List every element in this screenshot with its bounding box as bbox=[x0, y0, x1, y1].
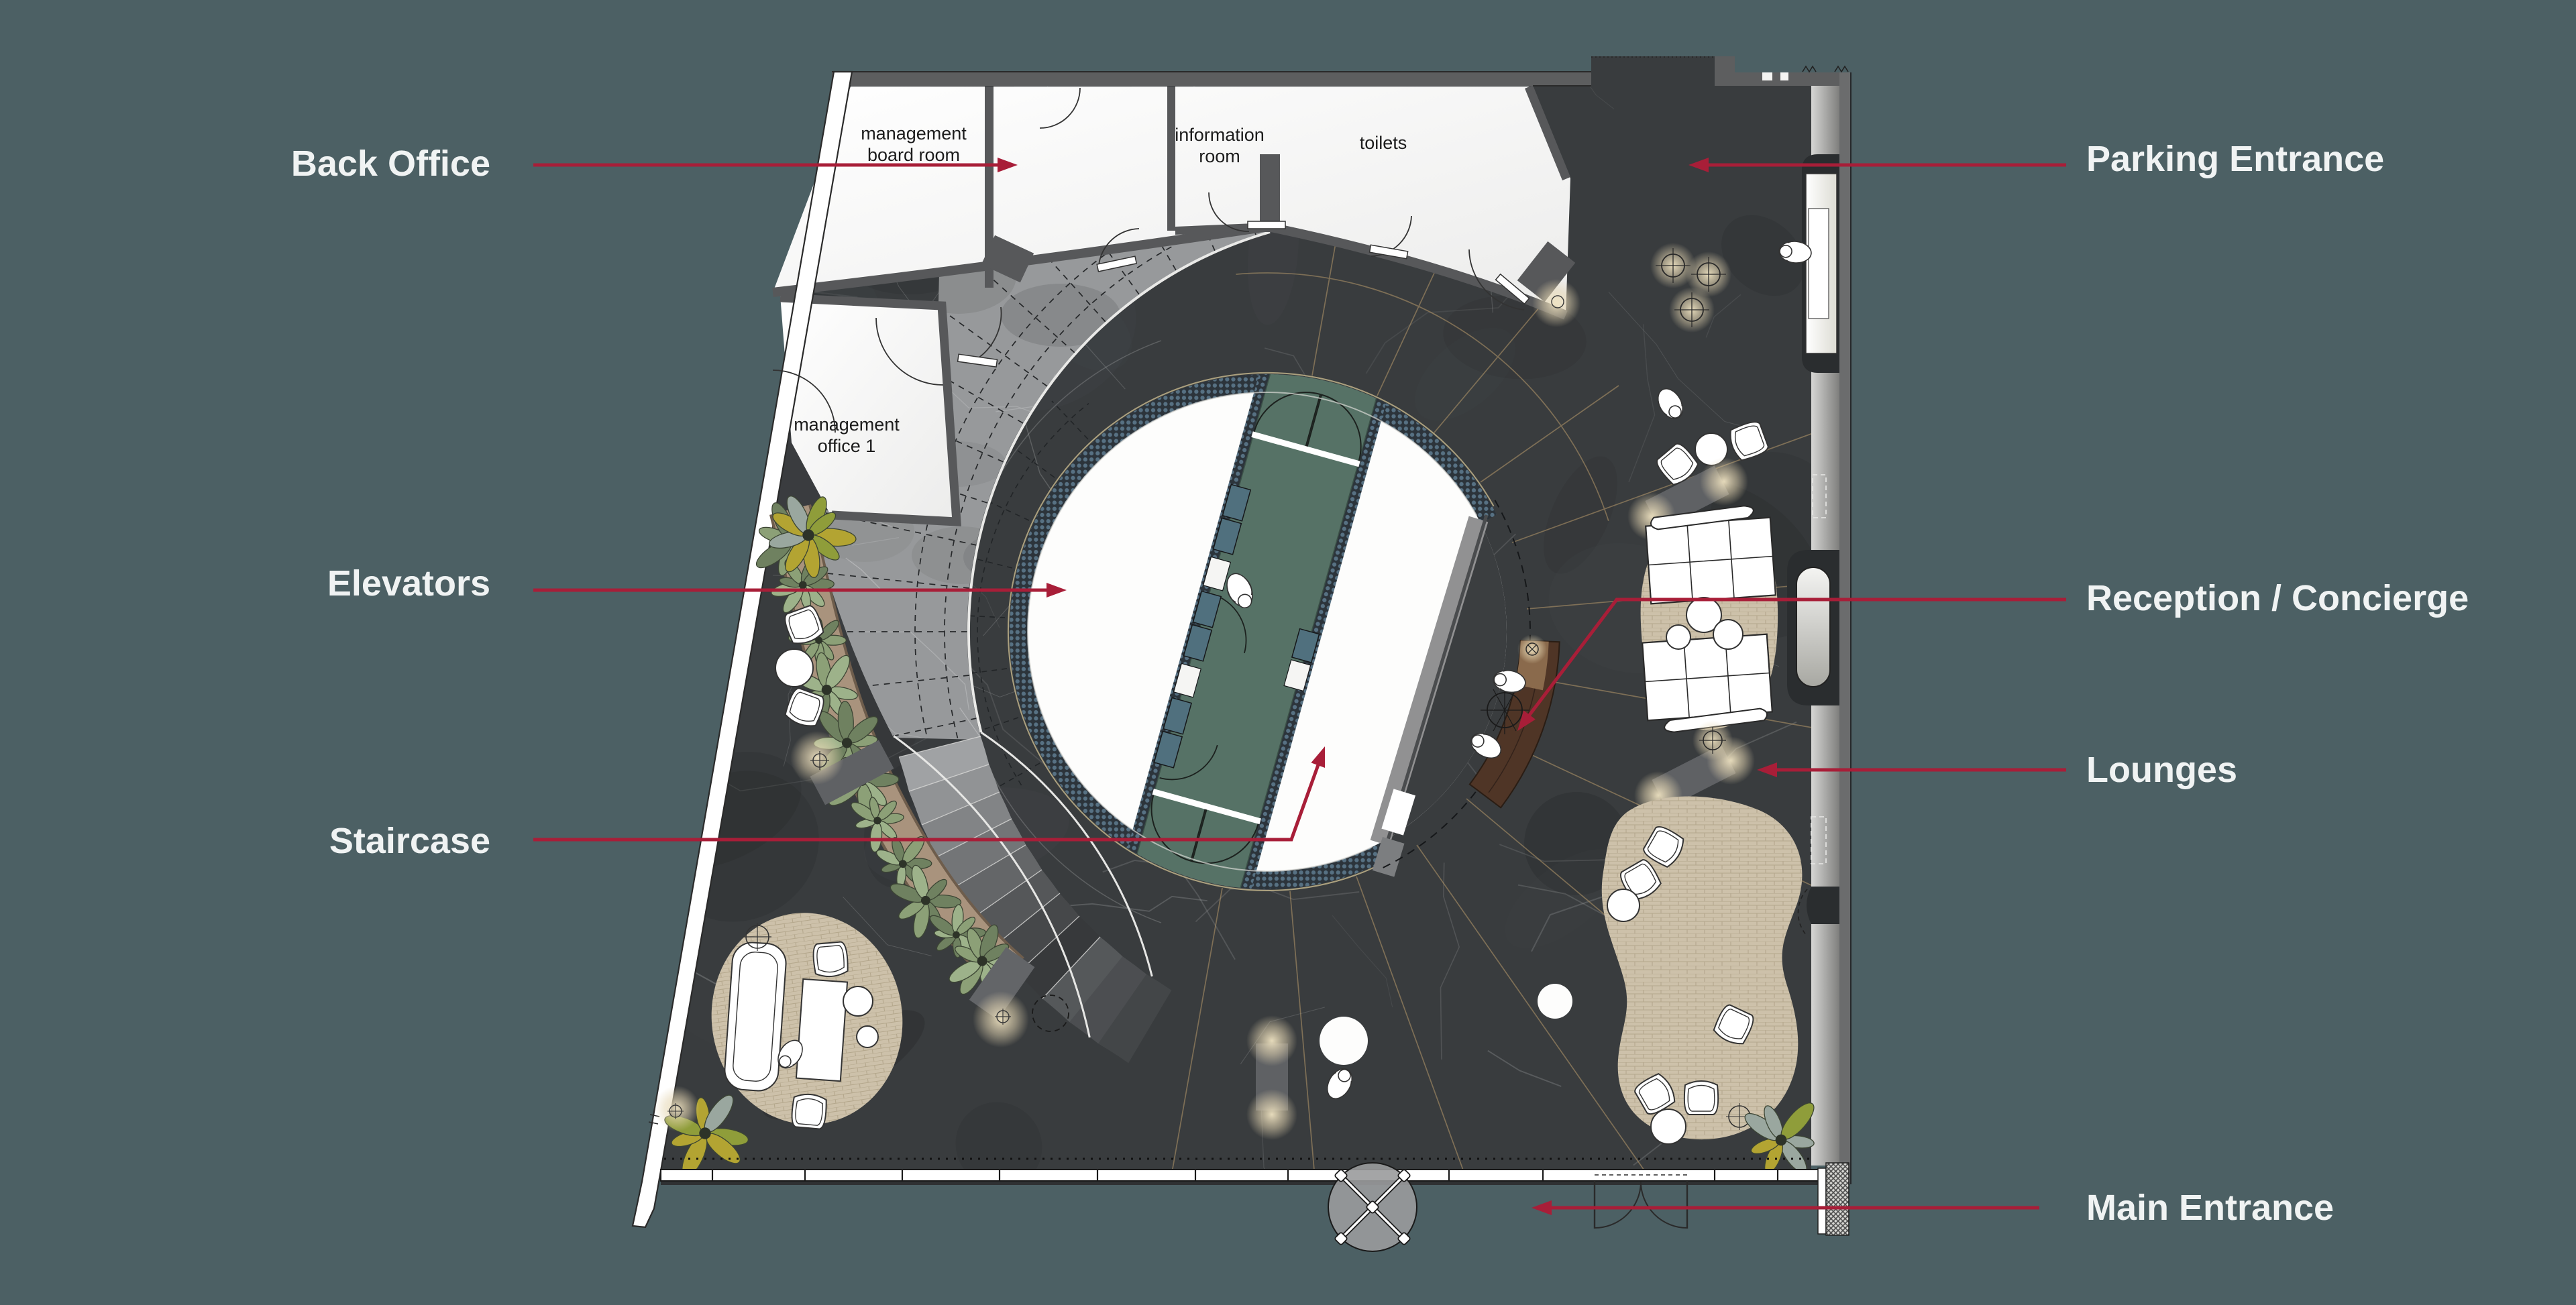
svg-text:Back Office: Back Office bbox=[291, 144, 490, 184]
svg-text:room: room bbox=[1199, 146, 1240, 166]
svg-text:information: information bbox=[1175, 125, 1265, 145]
svg-text:office 1: office 1 bbox=[818, 436, 876, 456]
svg-text:management: management bbox=[794, 414, 900, 435]
svg-text:Reception / Concierge: Reception / Concierge bbox=[2086, 578, 2469, 618]
svg-text:management: management bbox=[861, 123, 967, 144]
svg-text:Lounges: Lounges bbox=[2086, 750, 2237, 790]
svg-text:Main Entrance: Main Entrance bbox=[2086, 1188, 2334, 1228]
svg-text:Staircase: Staircase bbox=[329, 821, 490, 861]
svg-text:Parking Entrance: Parking Entrance bbox=[2086, 139, 2384, 179]
svg-text:Elevators: Elevators bbox=[327, 563, 490, 604]
svg-text:toilets: toilets bbox=[1360, 133, 1407, 153]
svg-text:board room: board room bbox=[867, 145, 960, 165]
